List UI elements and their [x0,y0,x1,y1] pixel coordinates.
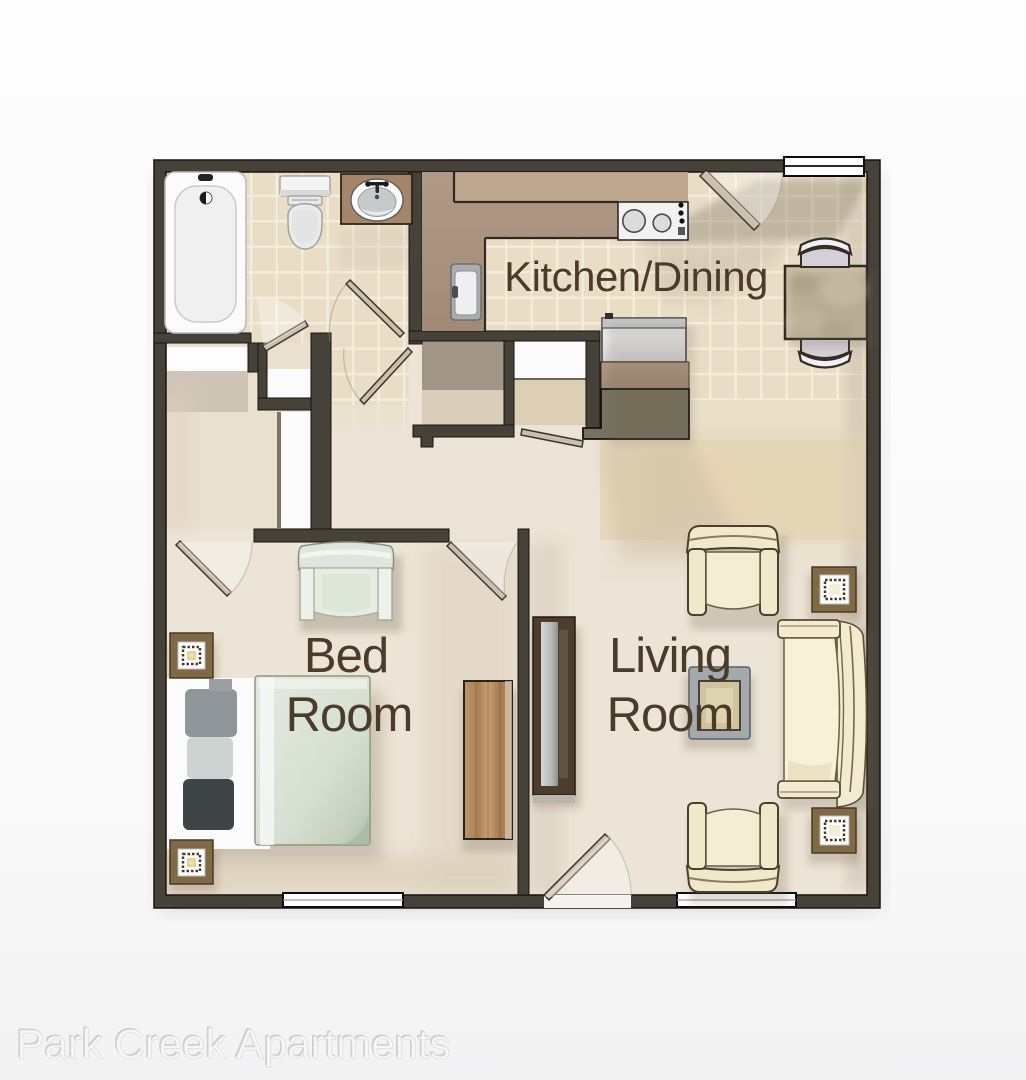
svg-text:Kitchen/Dining: Kitchen/Dining [504,253,768,300]
svg-text:Living: Living [609,629,731,683]
svg-text:Bed: Bed [304,629,388,683]
svg-text:Room: Room [607,688,734,742]
svg-text:Park Creek Apartments: Park Creek Apartments [17,1021,451,1068]
svg-text:Room: Room [286,688,413,742]
